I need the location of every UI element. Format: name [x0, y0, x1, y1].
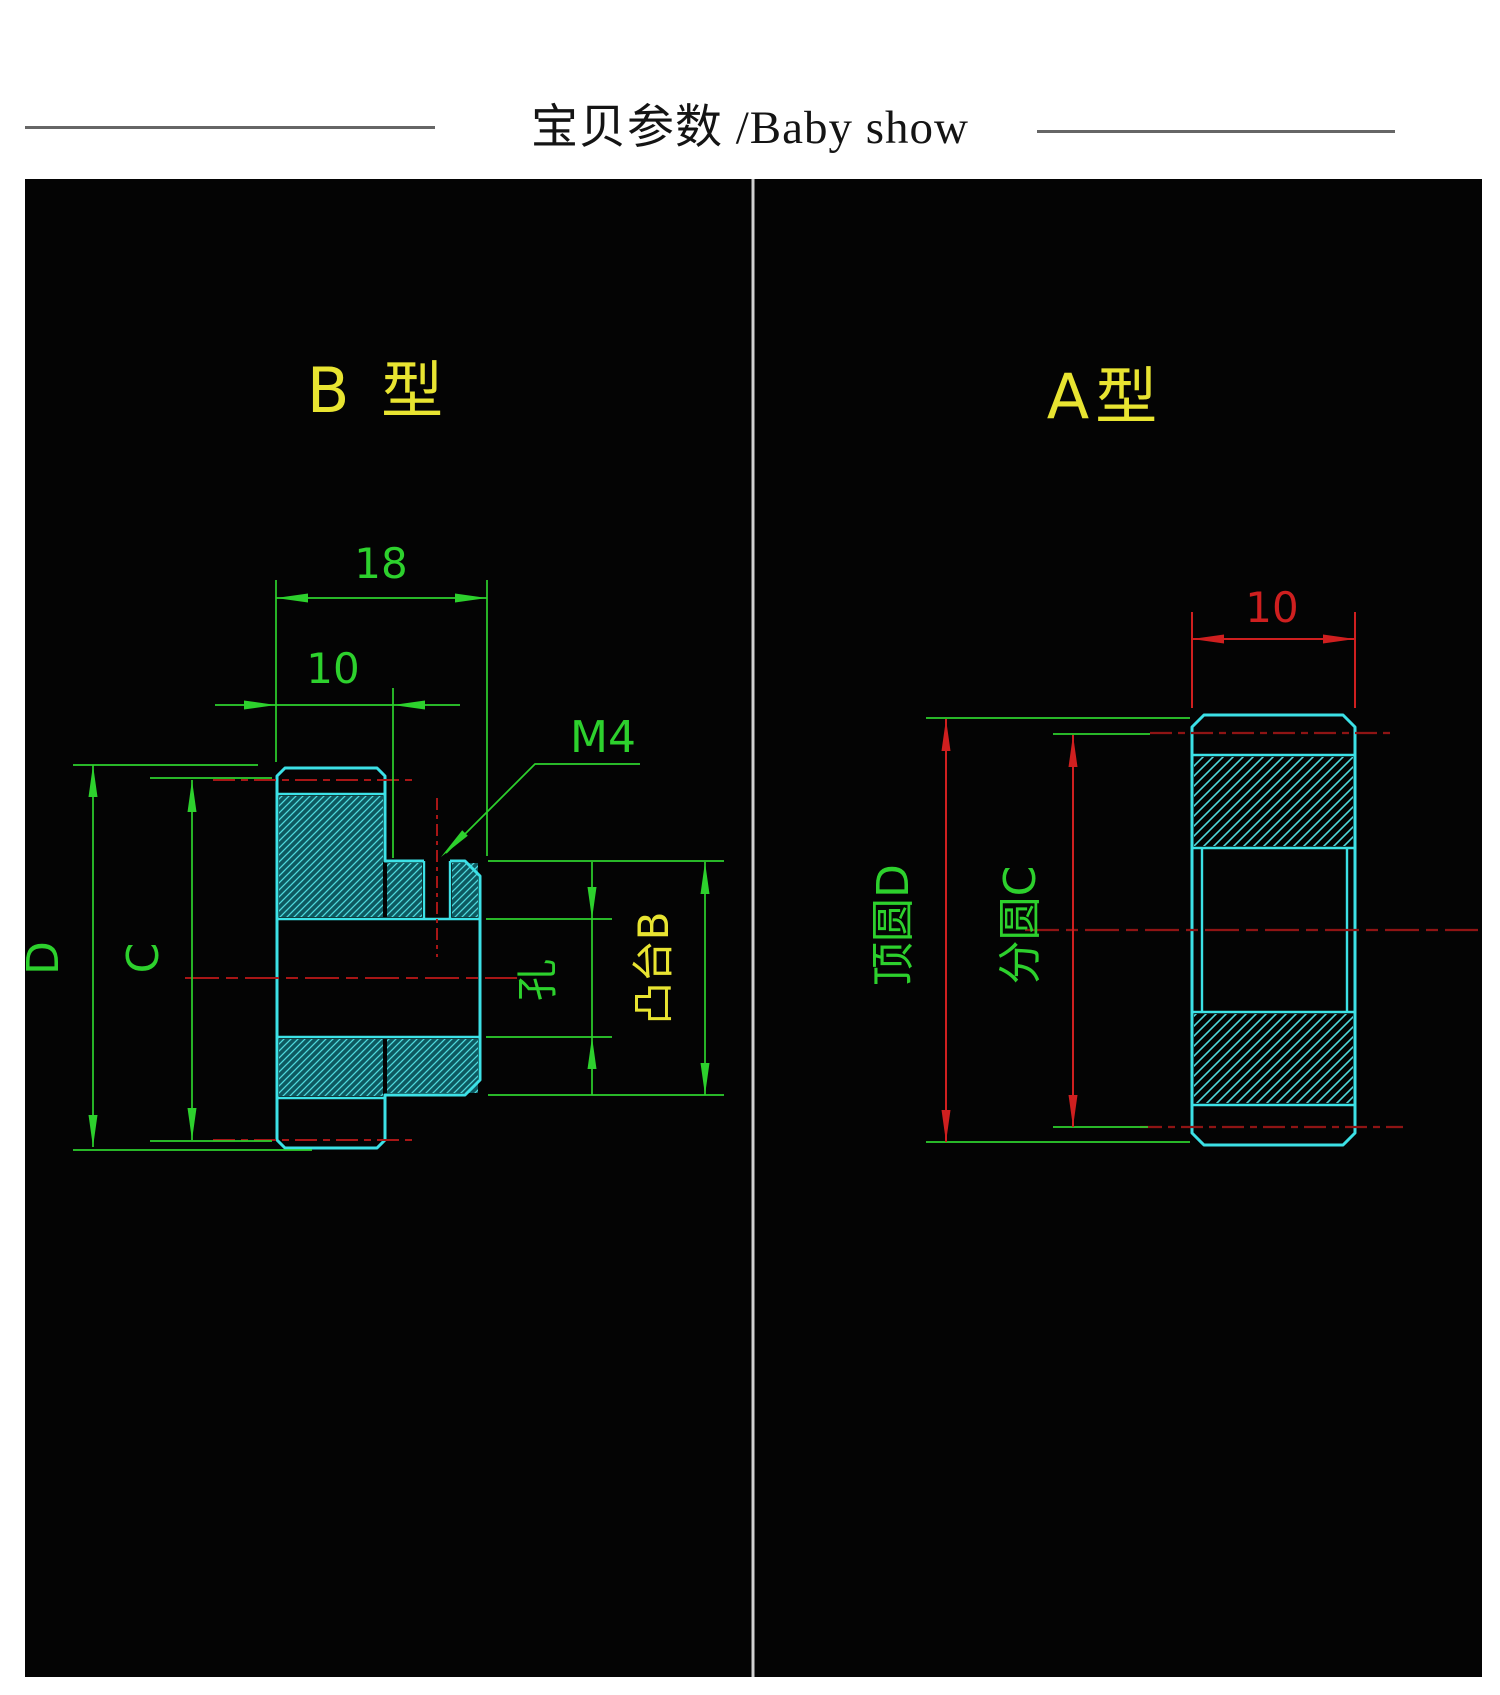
arrow-right	[455, 594, 487, 603]
arrow-right	[1323, 635, 1355, 644]
b-m4-leader: M4	[441, 712, 640, 857]
a-pitch-circle-label: 分圆C	[995, 866, 1046, 985]
arrow-left	[276, 594, 308, 603]
arrow-up	[188, 780, 197, 812]
header-rule-right	[1037, 130, 1395, 133]
hatch-region	[387, 863, 422, 917]
panel-a-title: A型	[1047, 360, 1163, 433]
arrow-up	[942, 719, 951, 751]
arrow-right	[244, 701, 276, 710]
b-pitch-circle-label: C	[118, 943, 169, 974]
panel-a: A型	[868, 360, 1478, 1145]
arrow-down	[588, 887, 597, 919]
b-dim-C: C	[118, 778, 272, 1141]
hatch-region	[387, 1039, 478, 1093]
hatch-region	[1194, 1014, 1353, 1103]
arrow-left	[1192, 635, 1224, 644]
b-hole-label: 孔	[513, 959, 562, 1001]
arrow-up	[701, 862, 710, 894]
b-tip-circle-label: D	[25, 941, 69, 975]
arrow-left	[393, 701, 425, 710]
a-dim-10-value: 10	[1245, 583, 1298, 632]
a-tip-circle-label: 顶圆D	[868, 864, 919, 986]
arrow-down	[188, 1108, 197, 1140]
b-dim-10-value: 10	[306, 644, 359, 693]
arrow-down	[701, 1063, 710, 1095]
hatch-region	[279, 796, 383, 917]
arrow-up	[588, 1037, 597, 1069]
arrow-down	[1069, 1095, 1078, 1127]
arrow-down	[89, 1115, 98, 1147]
hatch-region	[1194, 757, 1353, 846]
cad-drawing-canvas: B 型	[25, 179, 1482, 1677]
b-dim-18-value: 18	[354, 539, 407, 588]
panel-b: B 型	[25, 354, 724, 1150]
product-parameter-page: 宝贝参数 /Baby show B 型	[0, 0, 1500, 1695]
b-hatch-regions	[279, 796, 478, 1096]
b-boss-label: 凸台B	[629, 912, 678, 1025]
arrow-down	[942, 1110, 951, 1142]
page-title: 宝贝参数 /Baby show	[0, 88, 1500, 157]
cad-drawing: B 型	[25, 179, 1482, 1677]
leader-arrow	[441, 830, 468, 857]
a-dim-10: 10	[1192, 583, 1355, 708]
b-thread-label: M4	[570, 712, 636, 763]
arrow-up	[1069, 735, 1078, 767]
hatch-region	[279, 1039, 383, 1096]
arrow-up	[89, 765, 98, 797]
panel-b-title: B 型	[307, 354, 449, 427]
